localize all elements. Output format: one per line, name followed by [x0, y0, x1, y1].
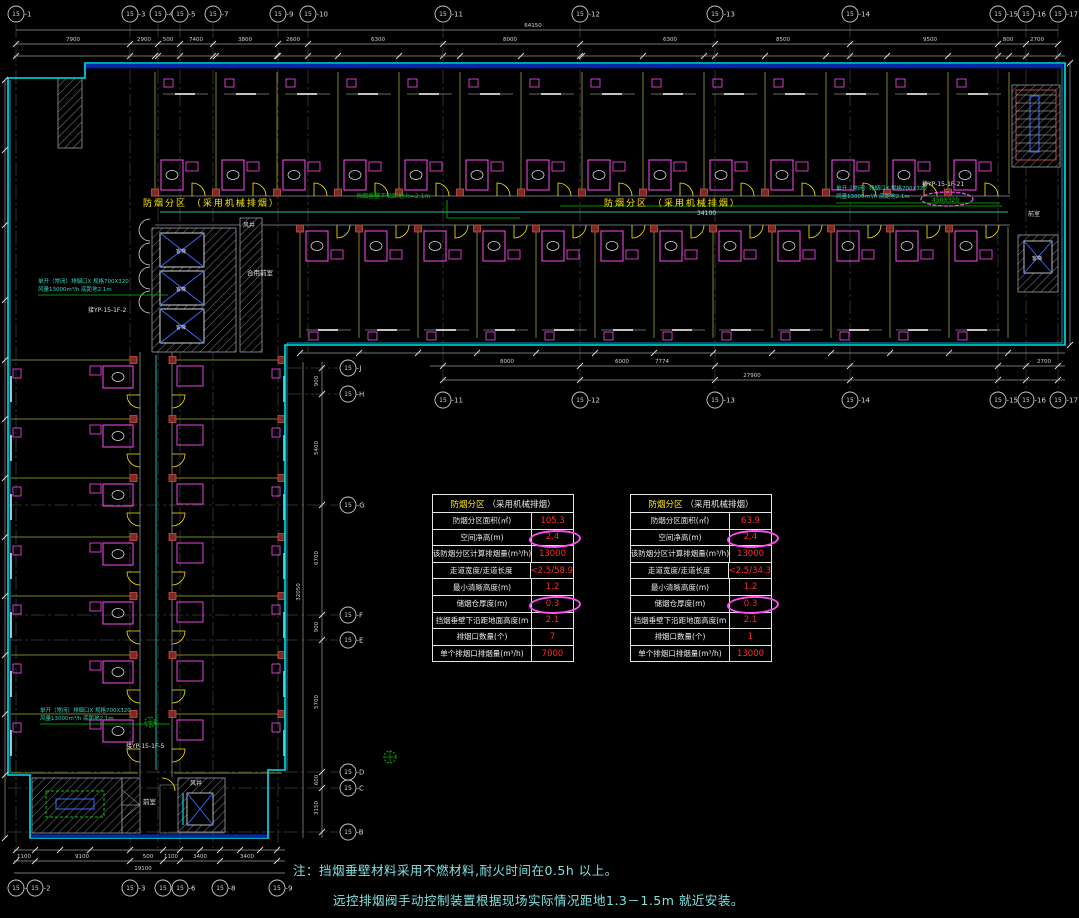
svg-text:5400: 5400 [314, 441, 320, 455]
svg-text:3150: 3150 [314, 801, 320, 815]
svg-text:-13: -13 [724, 397, 735, 405]
svg-text:15: 15 [994, 397, 1002, 404]
svg-text:风井: 风井 [190, 779, 202, 787]
svg-text:防烟分区 （采用机械排烟）: 防烟分区 （采用机械排烟） [143, 197, 280, 209]
grid-bubble: 15-14 [842, 6, 870, 22]
grid-bubble: 15-5 [172, 6, 195, 22]
svg-text:-14: -14 [859, 11, 871, 19]
svg-text:风量13000m³/h 底距地2.1m: 风量13000m³/h 底距地2.1m [38, 285, 112, 293]
row-value: 105.3 [532, 513, 573, 529]
svg-text:防烟分区 （采用机械排烟）: 防烟分区 （采用机械排烟） [604, 197, 741, 209]
row-value: 1.2 [532, 579, 573, 595]
grid-bubble: 15-9 [269, 880, 292, 896]
svg-text:1100: 1100 [17, 854, 31, 860]
svg-text:15: 15 [344, 637, 352, 644]
row-label: 排烟口数量(个) [631, 629, 730, 645]
table-row: 排烟口数量(个)1 [631, 628, 771, 645]
svg-text:8500: 8500 [776, 37, 790, 43]
grid-bubble: 15-H [340, 386, 364, 402]
svg-text:3400: 3400 [193, 854, 207, 860]
svg-text:单开（常闭）排烟口X 规格700X320: 单开（常闭）排烟口X 规格700X320 [836, 184, 927, 192]
svg-text:15: 15 [31, 885, 39, 892]
svg-text:15: 15 [1054, 11, 1062, 18]
svg-text:-12: -12 [589, 397, 600, 405]
svg-text:64150: 64150 [524, 23, 542, 29]
svg-text:15: 15 [994, 11, 1002, 18]
svg-text:15: 15 [344, 785, 352, 792]
svg-text:8000: 8000 [503, 37, 517, 43]
svg-text:15: 15 [304, 11, 312, 18]
svg-text:风量13000m³/h 底距地2.1m: 风量13000m³/h 底距地2.1m [40, 714, 114, 722]
svg-text:-5: -5 [189, 11, 196, 19]
grid-bubble: 15-17 [1050, 6, 1078, 22]
table-title: 防烟分区（采用机械排烟） [631, 495, 771, 512]
row-value: 13000 [730, 646, 771, 662]
svg-text:15: 15 [159, 885, 167, 892]
svg-text:-10: -10 [317, 11, 328, 19]
svg-text:挡烟垂壁下沿距地:h=2.1m: 挡烟垂壁下沿距地:h=2.1m [356, 192, 430, 200]
svg-text:2600: 2600 [286, 37, 300, 43]
svg-text:34100: 34100 [697, 210, 716, 217]
row-value: 2.1 [730, 613, 771, 629]
svg-text:1100: 1100 [164, 854, 178, 860]
row-value: 7 [532, 629, 573, 645]
svg-text:-H: -H [357, 391, 365, 399]
table-row: 挡烟垂壁下沿距地面高度(m2.1 [631, 612, 771, 629]
svg-text:客梯: 客梯 [176, 248, 186, 255]
row-value: 0.3 [532, 596, 573, 612]
svg-text:2700: 2700 [1037, 359, 1051, 365]
grid-bubble: 15-B [340, 824, 364, 840]
svg-text:-E: -E [357, 637, 364, 645]
grid-bubble: 15-6 [172, 880, 196, 896]
table-row: 单个排烟口排烟量(m³/h)13000 [631, 645, 771, 662]
grid-bubble: 15-E [340, 632, 363, 648]
svg-text:900: 900 [314, 621, 320, 632]
grid-bubble: 15-9 [270, 6, 293, 22]
table-row: 防烟分区面积(㎡)63.9 [631, 512, 771, 529]
floor-plan-linework: 6415079002900500740038002600630080006300… [0, 0, 1079, 918]
svg-text:15: 15 [344, 391, 352, 398]
row-value: 63.9 [730, 513, 771, 529]
grid-bubble: 15-C [340, 780, 364, 796]
svg-text:-11: -11 [452, 397, 463, 405]
svg-text:3400: 3400 [240, 854, 254, 860]
table-title: 防烟分区（采用机械排烟） [433, 495, 573, 512]
svg-text:-G: -G [357, 502, 365, 510]
svg-text:-11: -11 [452, 11, 463, 19]
svg-text:15: 15 [176, 885, 184, 892]
row-label: 空间净高(m) [631, 530, 730, 546]
svg-text:15: 15 [1022, 397, 1030, 404]
svg-text:6700: 6700 [314, 551, 320, 565]
svg-text:15: 15 [12, 11, 20, 18]
row-value: 13000 [730, 546, 771, 562]
row-label: 单个排烟口排烟量(m³/h) [631, 646, 730, 662]
row-label: 储烟仓厚度(m) [433, 596, 532, 612]
svg-text:6300: 6300 [663, 37, 677, 43]
svg-text:-17: -17 [1067, 397, 1078, 405]
row-label: 走道宽度/走道长度 [433, 563, 531, 579]
grid-bubble: 15-8 [212, 880, 235, 896]
svg-text:-C: -C [357, 785, 365, 793]
row-value: <2.5/58.9 [531, 563, 573, 579]
svg-text:-3: -3 [139, 885, 146, 893]
svg-text:15: 15 [344, 612, 352, 619]
grid-bubble: 15-12 [572, 392, 600, 408]
svg-text:-8: -8 [229, 885, 236, 893]
svg-text:15: 15 [154, 11, 162, 18]
row-label: 该防烟分区计算排烟量(m³/h) [631, 546, 730, 562]
row-label: 走道宽度/走道长度 [631, 563, 729, 579]
svg-text:15: 15 [711, 11, 719, 18]
cad-drawing-canvas: 6415079002900500740038002600630080006300… [0, 0, 1079, 918]
svg-text:15: 15 [1054, 397, 1062, 404]
row-value: <2.5/34.3 [729, 563, 771, 579]
svg-text:-D: -D [357, 769, 365, 777]
row-label: 最小清晰高度(m) [433, 579, 532, 595]
svg-text:19100: 19100 [134, 866, 152, 872]
svg-text:6300: 6300 [371, 37, 385, 43]
svg-text:900: 900 [314, 375, 320, 386]
svg-text:15: 15 [344, 365, 352, 372]
svg-text:32050: 32050 [296, 583, 302, 601]
svg-text:15: 15 [344, 502, 352, 509]
svg-text:15: 15 [576, 11, 584, 18]
table-row: 该防烟分区计算排烟量(m³/h)13000 [433, 545, 573, 562]
row-value: 1 [730, 629, 771, 645]
row-label: 排烟口数量(个) [433, 629, 532, 645]
svg-text:-15: -15 [1007, 11, 1018, 19]
table-row: 单个排烟口排烟量(m³/h)7000 [433, 645, 573, 662]
row-value: 1.2 [730, 579, 771, 595]
note-line-2: 远控排烟阀手动控制装置根据现场实际情况距地1.3－1.5m 就近安装。 [333, 890, 744, 909]
row-value: 0.3 [730, 596, 771, 612]
svg-text:-15: -15 [1007, 397, 1018, 405]
grid-bubble: 15-15 [990, 392, 1018, 408]
svg-text:-17: -17 [1067, 11, 1078, 19]
table-row: 空间净高(m)2.4 [433, 529, 573, 546]
svg-text:15: 15 [176, 11, 184, 18]
row-label: 防烟分区面积(㎡) [631, 513, 730, 529]
svg-text:-16: -16 [1035, 11, 1047, 19]
svg-text:15: 15 [846, 11, 854, 18]
grid-bubble: 15-10 [300, 6, 328, 22]
svg-text:6000: 6000 [615, 359, 629, 365]
svg-text:7900: 7900 [66, 37, 80, 43]
row-label: 挡烟垂壁下沿距地面高度(m [631, 613, 730, 629]
grid-bubble: 15-2 [27, 880, 50, 896]
svg-text:15: 15 [439, 11, 447, 18]
table-row: 空间净高(m)2.4 [631, 529, 771, 546]
svg-text:15: 15 [711, 397, 719, 404]
floor-plan [8, 63, 1065, 838]
table-row: 最小清晰高度(m)1.2 [631, 578, 771, 595]
row-label: 最小清晰高度(m) [631, 579, 730, 595]
table-row: 最小清晰高度(m)1.2 [433, 578, 573, 595]
grid-bubble: 15-7 [205, 6, 228, 22]
svg-text:800: 800 [1003, 37, 1014, 43]
grid-bubble: 15-13 [707, 392, 735, 408]
grid-bubbles: 15-115-315-415-515-715-915-1015-1115-121… [8, 6, 1078, 896]
grid-bubble: 15-13 [707, 6, 735, 22]
row-value: 2.4 [730, 530, 771, 546]
svg-text:15: 15 [344, 829, 352, 836]
svg-text:15: 15 [273, 885, 281, 892]
svg-text:-16: -16 [1035, 397, 1047, 405]
svg-text:27900: 27900 [743, 373, 761, 379]
svg-text:15: 15 [126, 885, 134, 892]
svg-text:-J: -J [357, 365, 362, 373]
svg-text:-13: -13 [724, 11, 735, 19]
table-row: 防烟分区面积(㎡)105.3 [433, 512, 573, 529]
svg-text:-12: -12 [589, 11, 600, 19]
grid-bubble: 15-14 [842, 392, 870, 408]
svg-text:接YP-15-1F-21: 接YP-15-1F-21 [922, 180, 964, 188]
grid-bubble: 15-16 [1018, 6, 1046, 22]
svg-text:风井: 风井 [243, 221, 255, 229]
svg-text:15: 15 [216, 885, 224, 892]
smoke-zone-table-1: 防烟分区（采用机械排烟）防烟分区面积(㎡)105.3空间净高(m)2.4该防烟分… [432, 494, 574, 662]
grid-bubble: 15-D [340, 764, 364, 780]
svg-text:2900: 2900 [137, 37, 151, 43]
svg-text:客梯: 客梯 [176, 324, 186, 331]
table-row: 该防烟分区计算排烟量(m³/h)13000 [631, 545, 771, 562]
svg-text:前室: 前室 [1028, 210, 1040, 218]
svg-text:接YP-15-1F-5: 接YP-15-1F-5 [126, 742, 165, 750]
row-label: 挡烟垂壁下沿距地面高度(m [433, 613, 532, 629]
svg-text:15: 15 [126, 11, 134, 18]
row-label: 空间净高(m) [433, 530, 532, 546]
svg-text:15: 15 [846, 397, 854, 404]
table-row: 挡烟垂壁下沿距地面高度(m2.1 [433, 612, 573, 629]
svg-text:单开（常闭）排烟口X 规格700X320: 单开（常闭）排烟口X 规格700X320 [40, 706, 131, 714]
row-label: 单个排烟口排烟量(m³/h) [433, 646, 532, 662]
svg-text:15: 15 [12, 885, 20, 892]
row-value: 2.1 [532, 613, 573, 629]
svg-text:-7: -7 [222, 11, 229, 19]
row-value: 13000 [532, 546, 573, 562]
svg-text:7400: 7400 [189, 37, 203, 43]
grid-bubble: 15-17 [1050, 392, 1078, 408]
svg-text:2700: 2700 [1030, 37, 1044, 43]
svg-text:8000: 8000 [500, 359, 514, 365]
grid-bubble: 15-1 [8, 6, 31, 22]
table-row: 排烟口数量(个)7 [433, 628, 573, 645]
svg-text:600: 600 [314, 774, 320, 785]
svg-text:500: 500 [163, 37, 174, 43]
svg-text:15: 15 [344, 769, 352, 776]
row-label: 防烟分区面积(㎡) [433, 513, 532, 529]
svg-text:3800: 3800 [238, 37, 252, 43]
svg-text:5700: 5700 [314, 695, 320, 709]
svg-text:单开（常闭）排烟口X 规格700X320: 单开（常闭）排烟口X 规格700X320 [38, 277, 129, 285]
grid-bubble: 15-F [340, 607, 363, 623]
note-line-1: 注：挡烟垂壁材料采用不燃材料,耐火时间在0.5h 以上。 [293, 860, 618, 879]
svg-text:15: 15 [439, 397, 447, 404]
svg-text:15: 15 [274, 11, 282, 18]
svg-text:500: 500 [143, 854, 154, 860]
table-row: 走道宽度/走道长度<2.5/58.9 [433, 562, 573, 579]
svg-text:15: 15 [576, 397, 584, 404]
svg-text:-2: -2 [44, 885, 51, 893]
svg-text:合用前室: 合用前室 [247, 268, 274, 277]
row-label: 该防烟分区计算排烟量(m³/h) [433, 546, 532, 562]
svg-text:客梯: 客梯 [1032, 255, 1042, 262]
svg-text:客梯: 客梯 [176, 286, 186, 293]
grid-bubble: 15-3 [122, 880, 145, 896]
grid-bubble: 15-G [340, 497, 365, 513]
svg-text:-3: -3 [139, 11, 146, 19]
svg-text:前室: 前室 [143, 797, 157, 806]
svg-text:-F: -F [357, 612, 364, 620]
grid-bubble: 15-11 [435, 6, 463, 22]
table-row: 储烟仓厚度(m)0.3 [433, 595, 573, 612]
grid-bubble: 15-4 [150, 6, 174, 22]
grid-bubble: 15-11 [435, 392, 463, 408]
grid-bubble: 15-3 [122, 6, 145, 22]
row-label: 储烟仓厚度(m) [631, 596, 730, 612]
svg-text:15: 15 [209, 11, 217, 18]
grid-bubble: 15-16 [1018, 392, 1046, 408]
grid-bubble: 15-15 [990, 6, 1018, 22]
grid-bubble: 15-12 [572, 6, 600, 22]
grid-bubble: 15-J [340, 360, 361, 376]
svg-text:15: 15 [1022, 11, 1030, 18]
table-row: 走道宽度/走道长度<2.5/34.3 [631, 562, 771, 579]
svg-text:-14: -14 [859, 397, 871, 405]
svg-text:-B: -B [357, 829, 364, 837]
smoke-zone-table-2: 防烟分区（采用机械排烟）防烟分区面积(㎡)63.9空间净高(m)2.4该防烟分区… [630, 494, 772, 662]
svg-text:接YP-15-1F-2: 接YP-15-1F-2 [88, 306, 127, 314]
row-value: 7000 [532, 646, 573, 662]
svg-text:9500: 9500 [923, 37, 937, 43]
row-value: 2.4 [532, 530, 573, 546]
grid-lines [8, 24, 1058, 848]
svg-text:-6: -6 [189, 885, 197, 893]
svg-text:-9: -9 [287, 11, 294, 19]
svg-text:-9: -9 [286, 885, 293, 893]
svg-text:风量13000m³/h 底距地2.1m: 风量13000m³/h 底距地2.1m [836, 192, 910, 200]
table-row: 储烟仓厚度(m)0.3 [631, 595, 771, 612]
svg-text:-1: -1 [25, 11, 32, 19]
svg-text:9100: 9100 [75, 854, 89, 860]
svg-text:7774: 7774 [655, 359, 669, 365]
